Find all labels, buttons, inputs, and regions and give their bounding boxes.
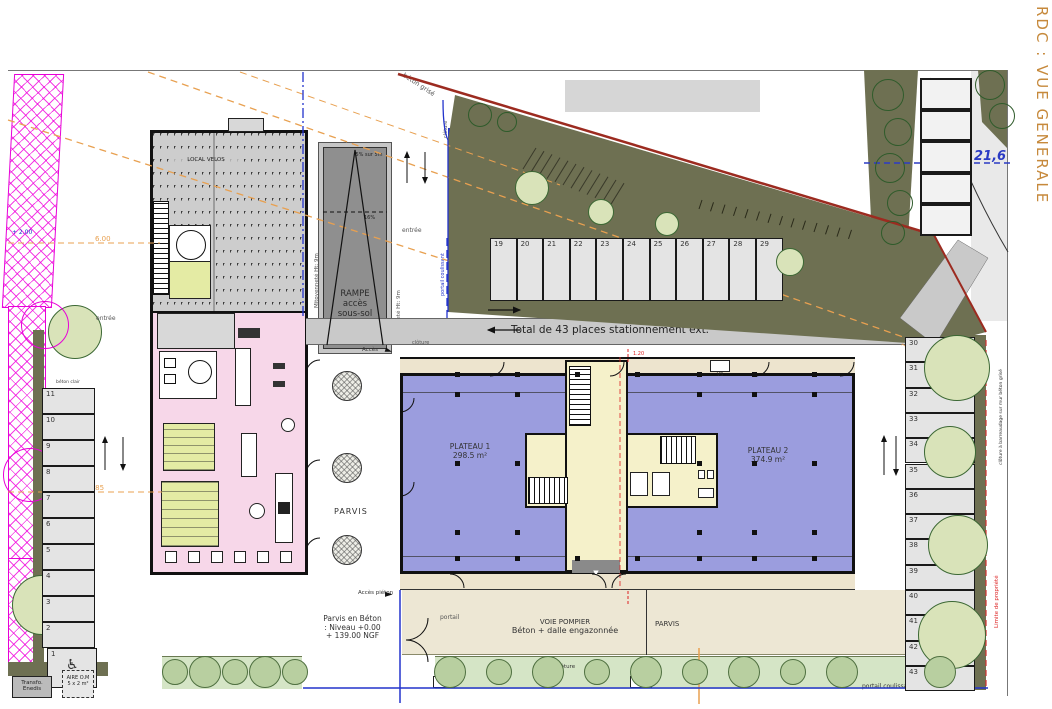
- parking-space-number: 25: [654, 240, 663, 248]
- hedge-bush: [728, 656, 760, 688]
- annex-room-yellow-3: [161, 481, 219, 547]
- hedge-bush: [682, 659, 708, 685]
- column-dot: [812, 530, 817, 535]
- column-dot: [752, 461, 757, 466]
- tree: [924, 426, 976, 478]
- bike-room-label: LOCAL VELOS: [171, 157, 241, 163]
- column-dot: [812, 461, 817, 466]
- parking-space-number: 30: [909, 339, 918, 347]
- parking-space-number: 8: [46, 468, 50, 476]
- transfo-box: Transfo.Enedis: [12, 676, 52, 698]
- parking-space: 4: [42, 570, 95, 596]
- parking-space-number: 38: [909, 541, 918, 549]
- parking-space: 27: [703, 238, 730, 301]
- dim-2-00: + 2.00: [12, 230, 32, 237]
- vs-box: VS: [710, 360, 730, 372]
- green-roof-label: TOIT VEGETAL LOCAL 2 ROUES Local béton 4…: [450, 200, 498, 227]
- hedge-bush: [584, 659, 610, 685]
- parking-space-number: 21: [547, 240, 556, 248]
- hedge-bush: [282, 659, 308, 685]
- column-dot: [635, 556, 640, 561]
- parking-space-number: 6: [46, 520, 50, 528]
- counter-long: [275, 473, 293, 543]
- counter: [235, 348, 251, 406]
- ramp-slope-main: 16%: [364, 216, 375, 222]
- parking-space: 7: [42, 492, 95, 518]
- column-dot: [697, 372, 702, 377]
- column-dot: [455, 372, 460, 377]
- fence-label-road: clôture: [412, 341, 429, 347]
- fire-lane-label: VOIE POMPIER Béton + dalle engazonnée: [475, 618, 655, 635]
- planter: [332, 453, 362, 483]
- neighbor-parking-space: [920, 78, 972, 110]
- parking-space-number: 37: [909, 516, 918, 524]
- column-dot: [575, 556, 580, 561]
- parking-space-number: 40: [909, 592, 918, 600]
- table: [234, 551, 246, 563]
- annex-room-yellow-2: [163, 423, 215, 471]
- parking-space: 21: [543, 238, 570, 301]
- table: [281, 418, 295, 432]
- planter: [332, 535, 362, 565]
- annex-service-band: [157, 313, 235, 349]
- total-parking-label: Total de 43 places stationnement ext.: [480, 324, 740, 336]
- parking-space-number: 2: [46, 624, 50, 632]
- table: [165, 551, 177, 563]
- access-label: Accès: [362, 347, 378, 353]
- tree: [924, 335, 990, 401]
- parvis-beton-label: Parvis en Béton : Niveau +0.00 + 139.00 …: [305, 615, 400, 641]
- column-dot: [635, 372, 640, 377]
- hedge-bush: [162, 659, 188, 685]
- parking-space-number: 33: [909, 415, 918, 423]
- ramp-slope-top: 5% sur 5m: [352, 153, 386, 159]
- core-stairs-east: [660, 436, 696, 464]
- parking-space: 23: [596, 238, 623, 301]
- tree-outline: [872, 79, 904, 111]
- column-dot: [515, 530, 520, 535]
- parking-space-number: 42: [909, 643, 918, 651]
- wc-fixture: [698, 470, 705, 479]
- neighbor-level-label: 21,6: [974, 150, 1006, 165]
- parking-space-number: 19: [494, 240, 503, 248]
- parking-space-number: 20: [521, 240, 530, 248]
- tree-outline: [21, 301, 69, 349]
- parking-space-number: 4: [46, 572, 50, 580]
- parking-space: 6: [42, 518, 95, 544]
- hedge-bush: [486, 659, 512, 685]
- tree: [515, 171, 549, 205]
- parking-space-number: 26: [680, 240, 689, 248]
- parking-space: 20: [517, 238, 544, 301]
- parking-space-number: 39: [909, 567, 918, 575]
- parking-space-number: 36: [909, 491, 918, 499]
- parking-space: 36: [905, 489, 975, 514]
- tree-outline: [884, 118, 912, 146]
- column-dot: [575, 372, 580, 377]
- hedge-bush: [222, 659, 248, 685]
- tree-outline: [989, 103, 1015, 129]
- parking-space: 9: [42, 440, 95, 466]
- road-level-label: 139.00 NGF: [620, 303, 667, 312]
- table: [280, 551, 292, 563]
- parking-space-number: 28: [733, 240, 742, 248]
- column-dot: [697, 392, 702, 397]
- stairs: [153, 201, 169, 295]
- parking-space-number: 3: [46, 598, 50, 606]
- annex-sanitary: [159, 351, 217, 399]
- parking-space-number: 9: [46, 442, 50, 450]
- hedge-bush: [780, 659, 806, 685]
- column-dot: [752, 392, 757, 397]
- entrance-mat: ▼: [572, 560, 620, 573]
- parking-space: 11: [42, 388, 95, 414]
- column-dot: [812, 556, 817, 561]
- parking-space: 22: [570, 238, 597, 301]
- tree-outline: [497, 112, 517, 132]
- parking-space: 10: [42, 414, 95, 440]
- column-dot: [455, 392, 460, 397]
- neighbor-parking-space: [920, 141, 972, 173]
- core-stairs-west: [528, 477, 568, 504]
- parking-space: 3: [42, 596, 95, 622]
- tree: [655, 212, 679, 236]
- parking-space-number: 27: [707, 240, 716, 248]
- surface-label-left: béton clair: [56, 380, 80, 385]
- parking-space: 28: [729, 238, 756, 301]
- parking-space-number: 31: [909, 364, 918, 372]
- neighbor-building: [565, 80, 760, 112]
- tree: [776, 248, 804, 276]
- parking-space-number: 24: [627, 240, 636, 248]
- parking-space-number: 35: [909, 466, 918, 474]
- dim-6-00: 6.00: [95, 235, 111, 243]
- annex-room-yellow-1: [169, 261, 211, 299]
- core-stairs-top: [569, 366, 591, 426]
- hedge-bush: [532, 656, 564, 688]
- tree: [918, 601, 986, 669]
- parking-space-number: 32: [909, 390, 918, 398]
- column-dot: [455, 530, 460, 535]
- column-dot: [515, 372, 520, 377]
- column-dot: [752, 556, 757, 561]
- hedge-bush: [826, 656, 858, 688]
- column-dot: [515, 461, 520, 466]
- parking-space: 25: [650, 238, 677, 301]
- parking-space-number: 41: [909, 617, 918, 625]
- tree-outline: [875, 153, 905, 183]
- column-dot: [455, 556, 460, 561]
- parking-space-number: 11: [46, 390, 55, 398]
- gate-label: portail: [440, 615, 459, 622]
- parvis-label-right: PARVIS: [655, 620, 679, 628]
- tree: [588, 199, 614, 225]
- hedge-bush: [249, 656, 281, 688]
- neighbor-parking-space: [920, 110, 972, 142]
- hedge-bush: [630, 656, 662, 688]
- parking-space-number: 29: [760, 240, 769, 248]
- column-dot: [697, 530, 702, 535]
- tree-outline: [975, 70, 1005, 100]
- stair-core: [169, 225, 211, 263]
- wc-fixture: [698, 488, 714, 498]
- column-dot: [515, 556, 520, 561]
- parking-space-number: 7: [46, 494, 50, 502]
- parking-space: 19: [490, 238, 517, 301]
- parking-space: 2: [42, 622, 95, 648]
- wc-fixture: [707, 470, 714, 479]
- neighbor-parking-space: [920, 173, 972, 205]
- annex-roof-access: [228, 118, 264, 132]
- table: [188, 551, 200, 563]
- elevator: [630, 472, 648, 496]
- furniture: [238, 328, 260, 338]
- column-dot: [515, 392, 520, 397]
- column-dot: [812, 372, 817, 377]
- furniture: [273, 381, 285, 387]
- entrance-label-left: entrée: [96, 316, 116, 323]
- pedestrian-access-arrow: ►: [385, 589, 393, 601]
- limit-label-right: Limite de propriété: [994, 575, 1000, 628]
- sliding-gate-label-top: portail coulissant: [441, 253, 447, 296]
- neighbor-parking-space: [920, 204, 972, 236]
- planter: [332, 371, 362, 401]
- parvis-strip-label: PARVIS: [334, 507, 368, 516]
- parking-space: 24: [623, 238, 650, 301]
- tree-outline: [887, 190, 913, 216]
- parking-space-number: 43: [909, 668, 918, 676]
- entrance-label-top: entrée: [402, 228, 422, 235]
- tree: [928, 515, 988, 575]
- waste-area-label: AIRE O.M5 x 2 m²: [63, 671, 93, 687]
- column-dot: [812, 392, 817, 397]
- parking-space-number: 34: [909, 440, 918, 448]
- parking-space: 5: [42, 544, 95, 570]
- parking-space-number: 10: [46, 416, 55, 424]
- tree-outline: [881, 221, 905, 245]
- hedge-bush: [189, 656, 221, 688]
- column-dot: [752, 530, 757, 535]
- site-plan: RDC : VUE GENERALE + 2.00 6.00 12.85 ent…: [0, 0, 1052, 709]
- parking-space-number: 5: [46, 546, 50, 554]
- hedge-bush: [924, 656, 956, 688]
- ramp-label: RAMPEaccèssous-sol: [325, 290, 385, 319]
- parking-space-number: 1: [51, 650, 55, 658]
- parking-space: 8: [42, 466, 95, 492]
- parking-space-number: 23: [600, 240, 609, 248]
- counter: [241, 433, 257, 477]
- parking-space-number: 22: [574, 240, 583, 248]
- fence-detail-label: clôture à barreaudage sur mur béton gris…: [999, 369, 1004, 465]
- transfo-label: Transfo.Enedis: [13, 677, 51, 692]
- column-dot: [752, 372, 757, 377]
- main-bottom-strip: [400, 574, 855, 590]
- page-title: RDC : VUE GENERALE: [1033, 6, 1050, 204]
- party-wall-label-left: Mitoyenneté Ht: 9m: [314, 253, 320, 308]
- parking-space: 26: [676, 238, 703, 301]
- hedge-bush: [434, 656, 466, 688]
- waste-area-box: AIRE O.M5 x 2 m²: [62, 670, 94, 698]
- plateau2-label: PLATEAU 2374.9 m²: [728, 447, 808, 464]
- table: [211, 551, 223, 563]
- elevator: [652, 472, 670, 496]
- plateau1-label: PLATEAU 1298.5 m²: [430, 443, 510, 460]
- furniture: [273, 363, 285, 369]
- tree-outline: [468, 103, 492, 127]
- annex-building: LOCAL VELOS: [150, 130, 308, 575]
- tables-row: [165, 551, 300, 565]
- table: [257, 551, 269, 563]
- table: [249, 503, 265, 519]
- column-dot: [697, 556, 702, 561]
- column-dot: [697, 461, 702, 466]
- column-dot: [455, 461, 460, 466]
